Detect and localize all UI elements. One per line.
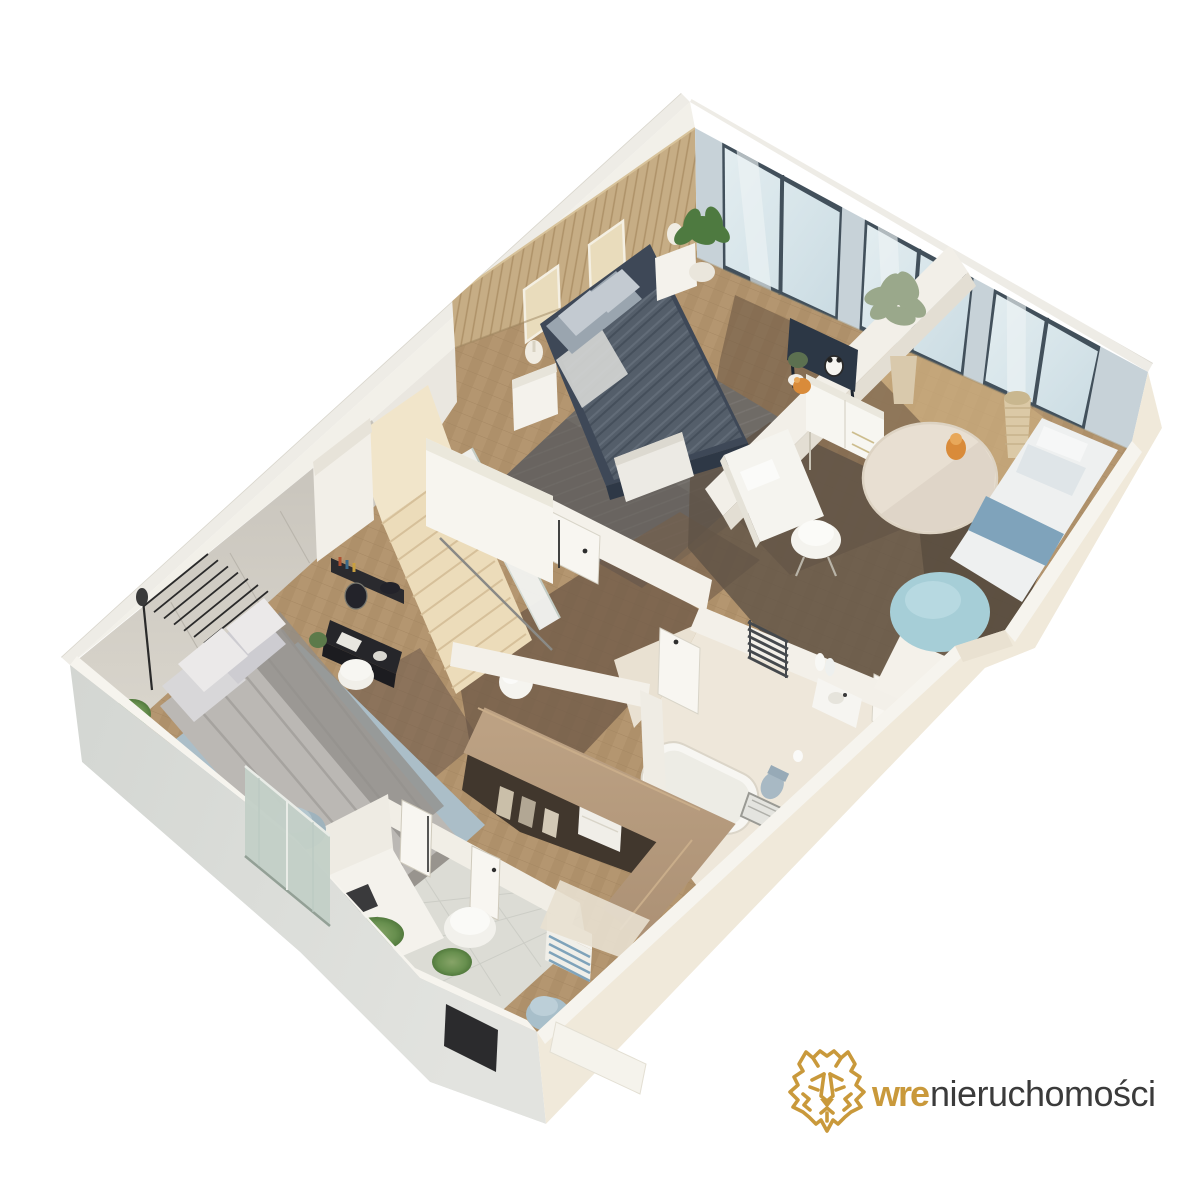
- svg-text:wre: wre: [871, 1073, 930, 1114]
- svg-text:nieruchomości: nieruchomości: [930, 1073, 1156, 1114]
